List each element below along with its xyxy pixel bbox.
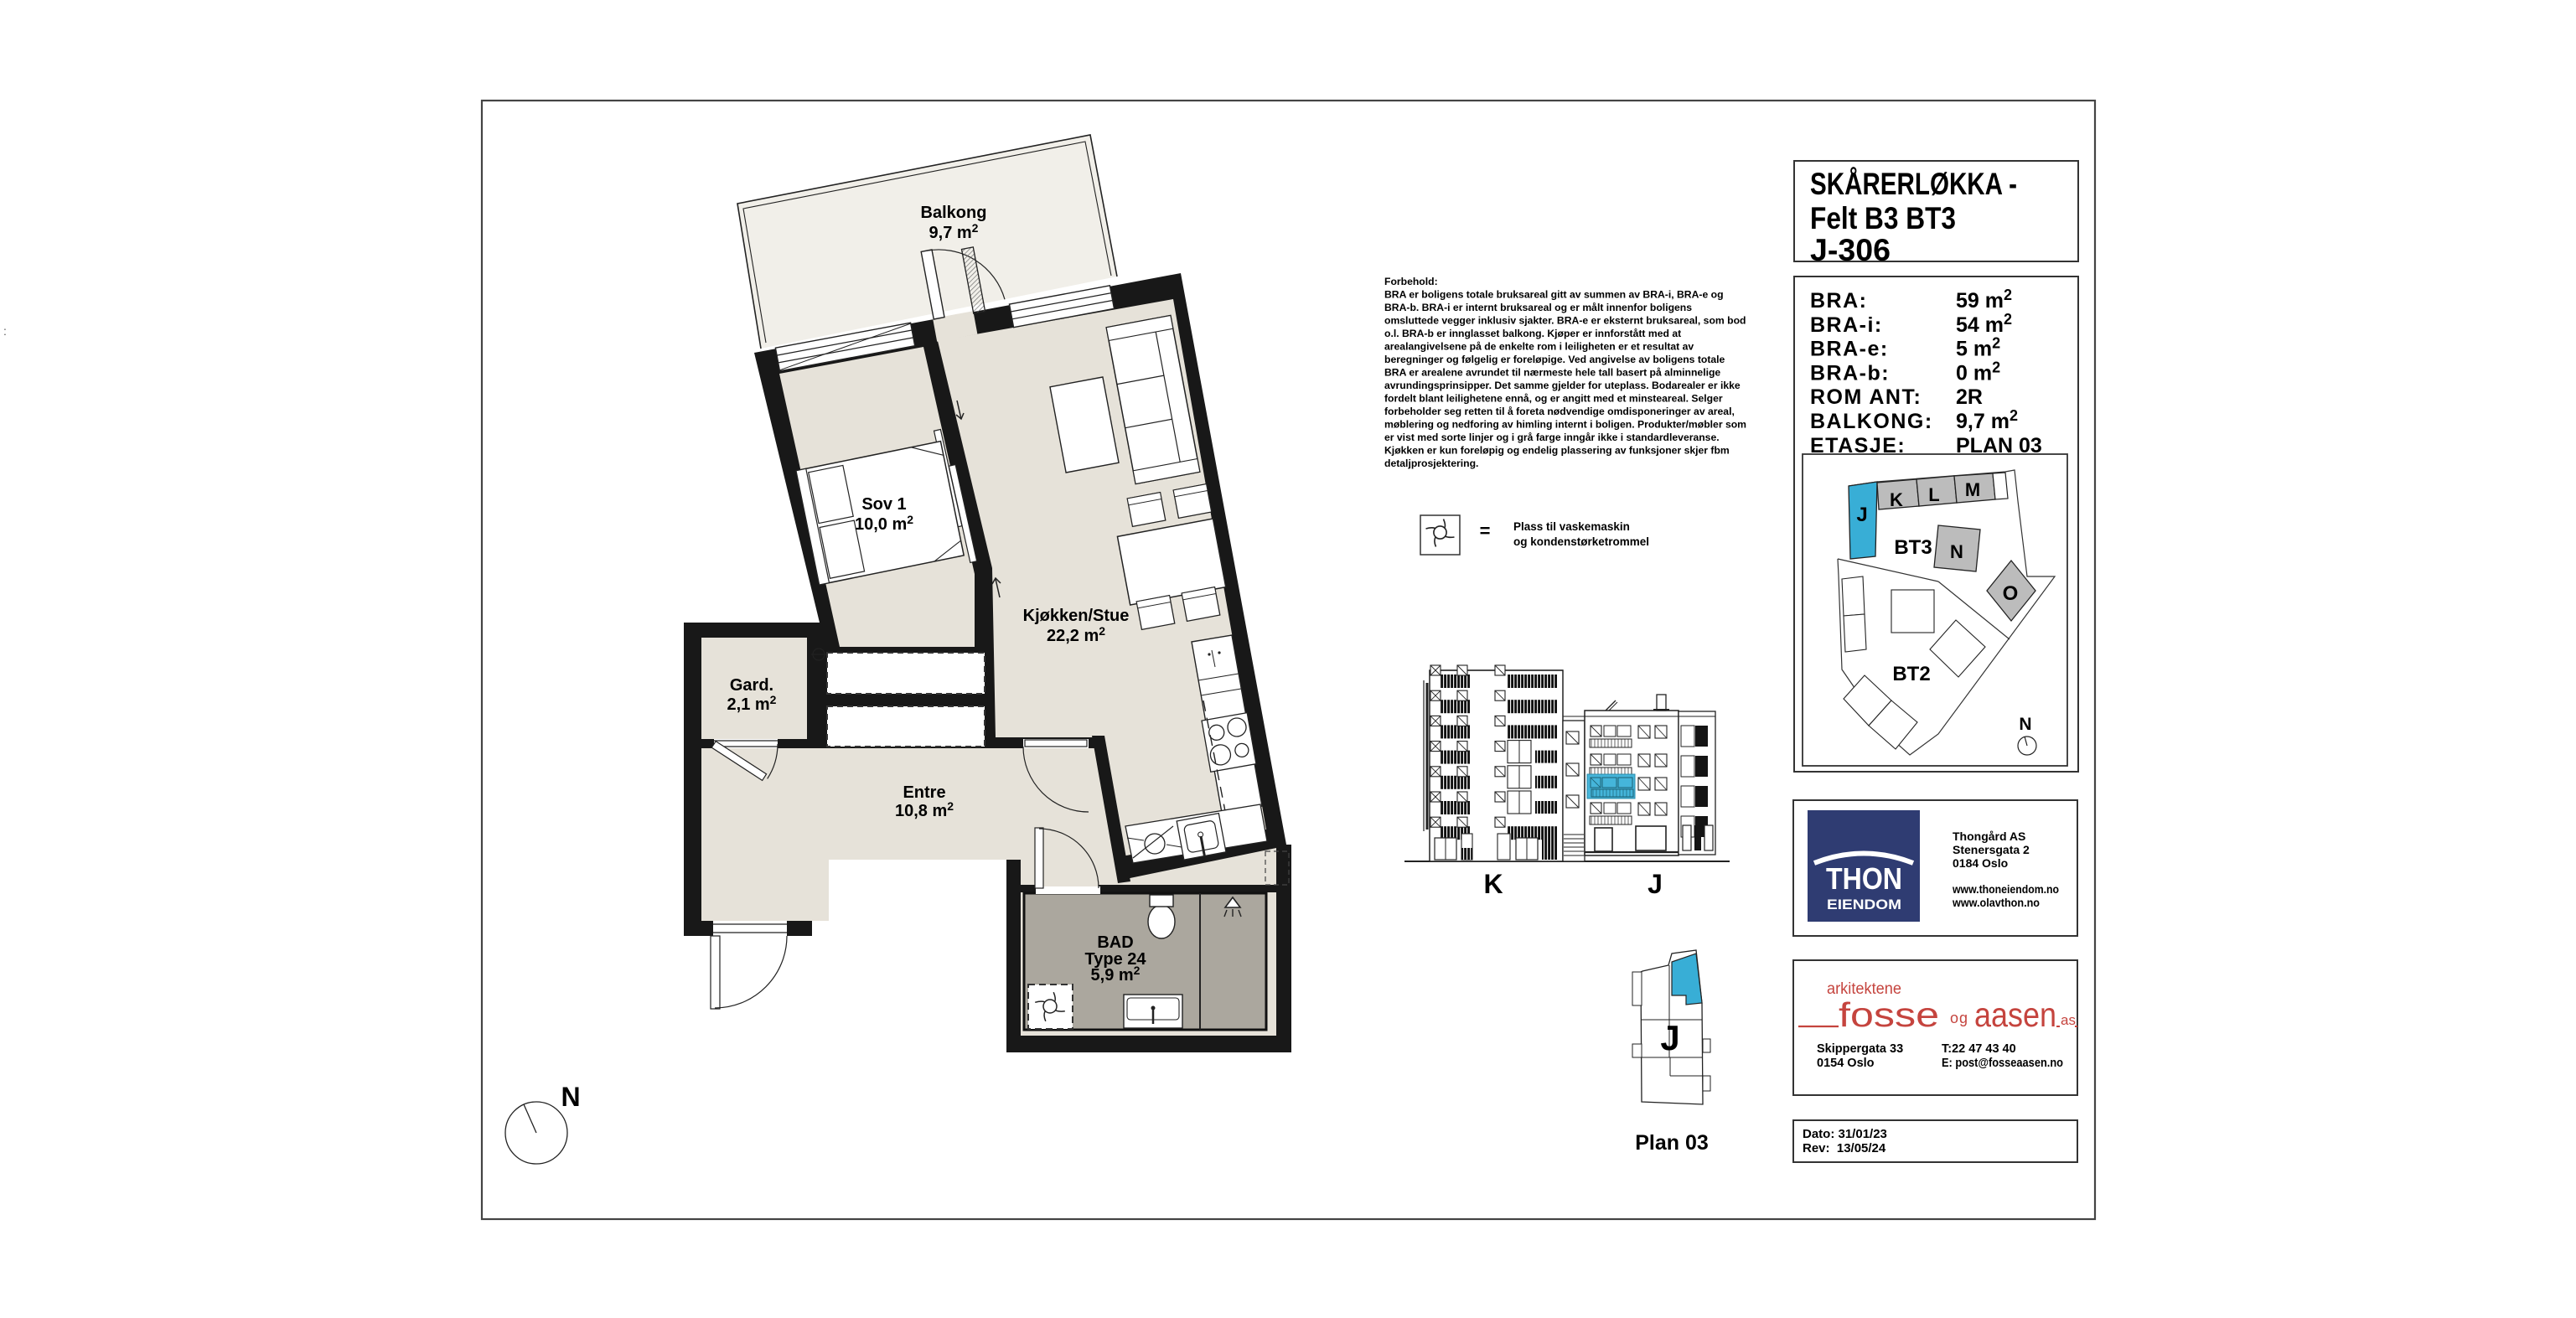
svg-text:9,7 m2: 9,7 m2	[929, 221, 979, 242]
svg-text:ROM ANT:: ROM ANT:	[1810, 385, 1922, 409]
svg-text:Thongård AS: Thongård AS	[1953, 830, 2025, 843]
svg-text:J-306: J-306	[1810, 233, 1891, 267]
svg-text:er vist med sorte linjer og i: er vist med sorte linjer og i grå farge …	[1384, 432, 1720, 443]
svg-text:2,1 m2: 2,1 m2	[727, 693, 777, 714]
svg-text:Felt B3 BT3: Felt B3 BT3	[1810, 201, 1956, 235]
svg-text:møblering og nedforing av himl: møblering og nedforing av himling intern…	[1384, 419, 1746, 431]
svg-text:BRA-i:: BRA-i:	[1810, 313, 1883, 337]
svg-text:L: L	[1928, 484, 1939, 505]
svg-text:og: og	[1950, 1010, 1968, 1026]
svg-text:Dato: 31/01/23: Dato: 31/01/23	[1803, 1127, 1887, 1141]
svg-text:M: M	[1965, 479, 1980, 500]
svg-text:Entre: Entre	[903, 783, 945, 802]
svg-text:Plass til vaskemaskin: Plass til vaskemaskin	[1513, 520, 1630, 533]
svg-text:=: =	[1480, 520, 1491, 541]
svg-text:5,9 m2: 5,9 m2	[1091, 964, 1141, 985]
svg-text:BRA-b. BRA-i er internt bruksa: BRA-b. BRA-i er internt bruksareal og er…	[1384, 302, 1692, 313]
svg-text:N: N	[1950, 541, 1963, 562]
svg-text:og kondenstørketrommel: og kondenstørketrommel	[1513, 535, 1649, 548]
svg-text:T:22 47 43 40: T:22 47 43 40	[1942, 1042, 2016, 1056]
svg-text:Rev: 13/05/24: Rev: 13/05/24	[1803, 1141, 1886, 1155]
svg-text:9,7 m2: 9,7 m2	[1956, 407, 2018, 433]
svg-text:BRA-e:: BRA-e:	[1810, 338, 1889, 361]
svg-text:Gard.: Gard.	[730, 676, 773, 695]
svg-text:beregninger og følgelig er for: beregninger og følgelig er foreløpige. V…	[1384, 354, 1725, 365]
svg-text:aasen: aasen	[1974, 995, 2056, 1034]
svg-text:J: J	[1660, 1018, 1679, 1057]
svg-text:forbeholder seg retten til å f: forbeholder seg retten til å foreta nødv…	[1384, 406, 1735, 417]
svg-text:BAD: BAD	[1097, 933, 1133, 952]
svg-text:Sov 1: Sov 1	[861, 495, 906, 514]
svg-text:K: K	[1890, 489, 1903, 510]
svg-text:Balkong: Balkong	[921, 204, 987, 222]
svg-text:fordelt blant leilighetene enn: fordelt blant leilighetene ennå, og er a…	[1384, 393, 1723, 405]
svg-text:BRA er arealene avrundet til n: BRA er arealene avrundet til nærmeste he…	[1384, 367, 1720, 379]
svg-text:J: J	[1648, 869, 1663, 899]
svg-text:22,2 m2: 22,2 m2	[1047, 624, 1105, 645]
svg-text:www.olavthon.no: www.olavthon.no	[1952, 896, 2040, 909]
svg-text:Kjøkken/Stue: Kjøkken/Stue	[1023, 607, 1130, 625]
svg-text:Plan 03: Plan 03	[1635, 1131, 1709, 1155]
svg-text:Forbehold:: Forbehold:	[1384, 276, 1438, 287]
svg-text:www.thoneiendom.no: www.thoneiendom.no	[1952, 882, 2059, 896]
svg-text:THON: THON	[1826, 861, 1902, 896]
svg-text:54 m2: 54 m2	[1956, 311, 2012, 337]
svg-text::: :	[3, 324, 7, 338]
svg-text:detaljprosjektering.: detaljprosjektering.	[1384, 457, 1478, 469]
svg-text:BRA er boligens totale bruksar: BRA er boligens totale bruksareal gitt a…	[1384, 289, 1724, 301]
svg-text:BRA-b:: BRA-b:	[1810, 361, 1890, 385]
svg-text:omsluttede vegger inklusiv sja: omsluttede vegger inklusiv sjakter. BRA-…	[1384, 315, 1746, 327]
svg-text:Skippergata 33: Skippergata 33	[1817, 1042, 1903, 1056]
svg-text:as: as	[2061, 1012, 2076, 1028]
svg-text:Kjøkken er kun foreløpig og en: Kjøkken er kun foreløpig og endelig plas…	[1384, 445, 1730, 457]
svg-text:N: N	[2019, 715, 2031, 734]
svg-text:E: post@fosseaasen.no: E: post@fosseaasen.no	[1942, 1057, 2063, 1070]
svg-text:arealangivelsene på de enkelte: arealangivelsene på de enkelte rom i lei…	[1384, 341, 1694, 353]
svg-text:10,0 m2: 10,0 m2	[855, 513, 913, 534]
svg-text:O: O	[2003, 582, 2019, 605]
svg-text:EIENDOM: EIENDOM	[1827, 897, 1901, 912]
svg-text:0184 Oslo: 0184 Oslo	[1953, 856, 2008, 870]
svg-text:59 m2: 59 m2	[1956, 287, 2012, 313]
svg-text:K: K	[1483, 869, 1503, 899]
svg-text:10,8 m2: 10,8 m2	[895, 799, 954, 820]
svg-text:BRA:: BRA:	[1810, 289, 1868, 313]
svg-text:BT2: BT2	[1892, 663, 1930, 685]
svg-text:BALKONG:: BALKONG:	[1810, 410, 1933, 433]
svg-text:avrundingsprinsipper. Det samm: avrundingsprinsipper. Det samme gjelder …	[1384, 380, 1741, 391]
svg-text:2R: 2R	[1956, 385, 1983, 409]
svg-text:fosse: fosse	[1839, 995, 1939, 1034]
svg-text:0154 Oslo: 0154 Oslo	[1817, 1057, 1875, 1070]
svg-text:N: N	[561, 1082, 580, 1112]
svg-text:o.l. BRA-b er innglasset balko: o.l. BRA-b er innglasset balkong. Kjøper…	[1384, 328, 1681, 339]
svg-text:BT3: BT3	[1894, 536, 1932, 559]
svg-text:SKÅRERLØKKA -: SKÅRERLØKKA -	[1810, 167, 2017, 201]
svg-text:Stenersgata 2: Stenersgata 2	[1953, 843, 2030, 856]
svg-text:J: J	[1856, 504, 1867, 526]
